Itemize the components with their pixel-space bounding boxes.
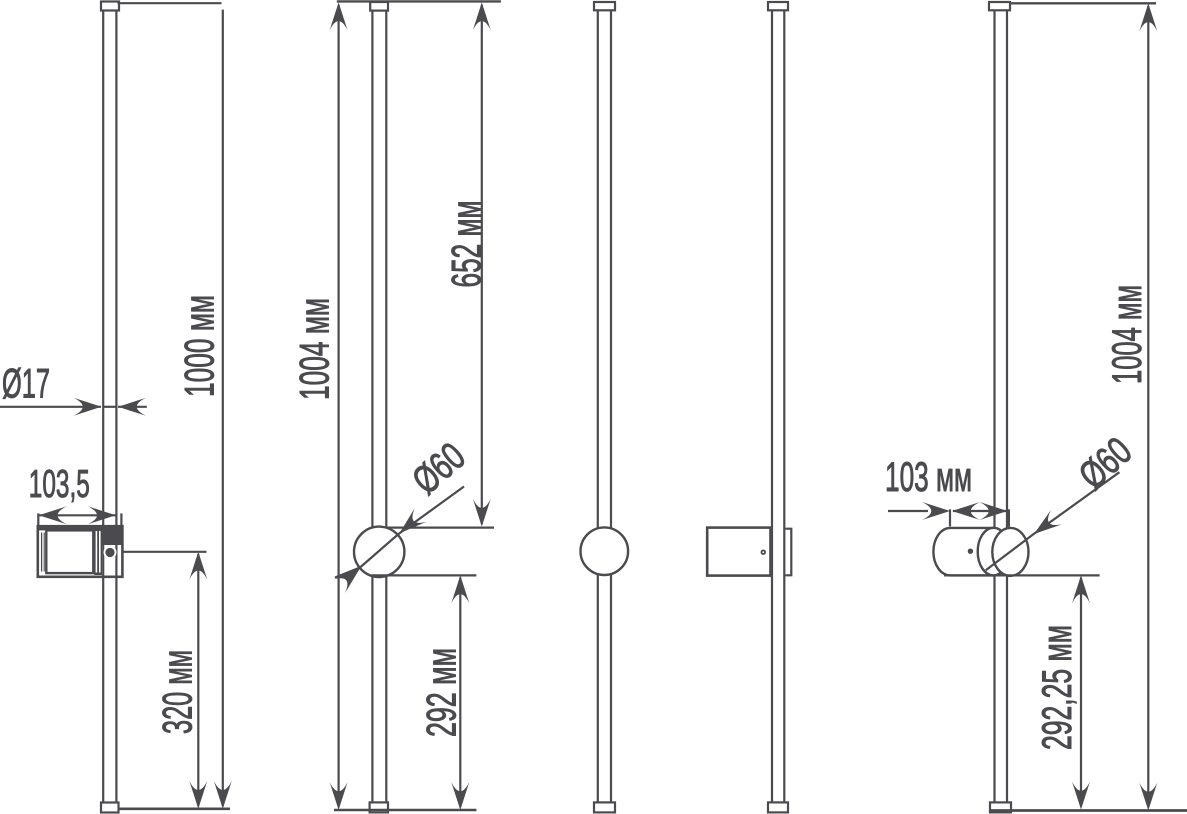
svg-text:103,5: 103,5 [29,463,90,506]
svg-text:Ø60: Ø60 [405,435,474,503]
svg-text:292,25 мм: 292,25 мм [1033,625,1080,750]
svg-text:320 мм: 320 мм [154,650,201,734]
svg-text:652 мм: 652 мм [443,200,490,287]
svg-text:1004 мм: 1004 мм [291,298,338,400]
svg-text:292 мм: 292 мм [418,648,465,737]
svg-text:103 мм: 103 мм [885,453,972,500]
svg-text:Ø17: Ø17 [2,360,50,407]
svg-text:1004 мм: 1004 мм [1103,285,1150,384]
svg-text:Ø60: Ø60 [1071,430,1140,498]
svg-text:1000 мм: 1000 мм [176,295,223,397]
